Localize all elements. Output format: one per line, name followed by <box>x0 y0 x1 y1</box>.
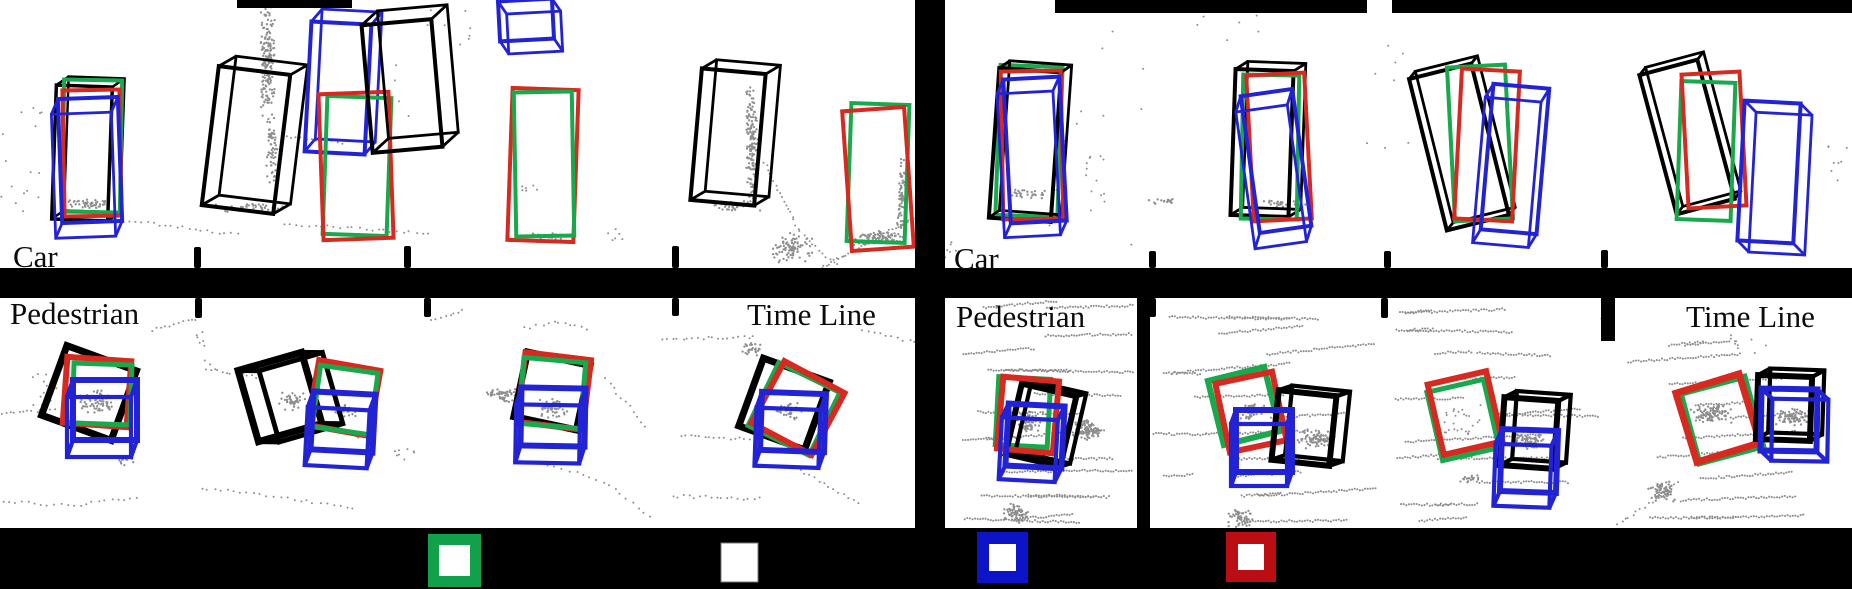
timeline-tick <box>1384 251 1391 268</box>
frame-divider <box>1137 297 1150 529</box>
top-crop-bar-right2 <box>1392 0 1852 13</box>
label-pedestrian-right: Pedestrian <box>956 301 1085 332</box>
top-crop-bar-right1 <box>1055 0 1367 13</box>
timeline-tick <box>194 247 201 268</box>
label-timeline-right: Time Line <box>1686 301 1815 332</box>
legend-swatch-white <box>721 543 758 582</box>
legend-swatch-green <box>428 534 481 587</box>
label-car-left: Car <box>13 241 58 272</box>
legend-swatch-blue <box>977 532 1028 583</box>
legend-strip <box>0 528 1852 589</box>
frame-divider <box>1601 297 1615 341</box>
top-crop-bar-left <box>237 0 352 8</box>
timeline-tick <box>1601 250 1608 268</box>
timeline-tick <box>672 246 679 268</box>
label-timeline-left: Time Line <box>747 299 876 330</box>
timeline-tick <box>672 298 679 316</box>
timeline-tick <box>195 298 202 318</box>
label-car-right: Car <box>954 243 999 274</box>
legend-swatch-red <box>1226 532 1276 582</box>
panel-gap <box>915 0 945 589</box>
timeline-tick <box>404 246 411 268</box>
timeline-tick <box>1149 298 1156 317</box>
timeline-tick <box>1149 251 1156 268</box>
timeline-tick <box>1381 298 1388 318</box>
timeline-tick <box>424 298 431 317</box>
label-pedestrian-left: Pedestrian <box>10 298 139 329</box>
tracking-results-figure: Car Pedestrian Time Line Car Pedestrian … <box>0 0 1852 589</box>
scene-canvas <box>0 0 1852 589</box>
